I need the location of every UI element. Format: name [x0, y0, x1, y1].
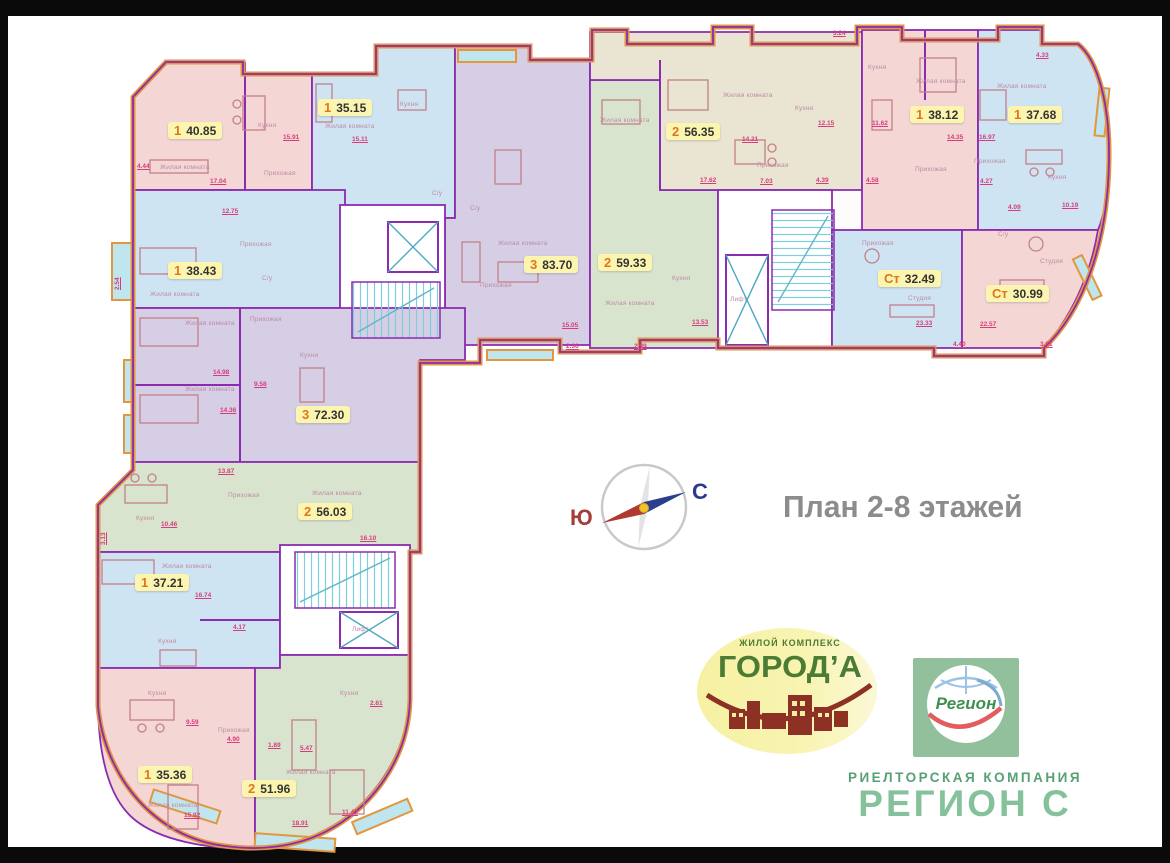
dimension-label: 14.36 [220, 407, 236, 414]
room-label-living: Жилая комната [160, 164, 210, 171]
room-label-hall: Прихожая [218, 727, 250, 734]
dimension-label: 4.39 [816, 177, 829, 184]
room-label-kitchen: Кухня [258, 122, 276, 129]
dimension-label: 15.11 [352, 136, 368, 143]
dimension-label: 2.54 [114, 277, 121, 290]
dimension-label: 16.74 [195, 592, 211, 599]
room-label-kitchen: Кухня [795, 105, 813, 112]
dimension-label: 5.47 [300, 745, 313, 752]
dimension-label: 14.35 [947, 134, 963, 141]
apartment-type: 1 [174, 264, 181, 277]
apartment-type: 1 [144, 768, 151, 781]
apartment-area: 38.43 [186, 265, 216, 277]
dimension-label: 17.04 [210, 178, 226, 185]
dimension-label: 10.19 [1062, 202, 1078, 209]
dimension-label: 13.53 [692, 319, 708, 326]
dimension-label: 15.05 [562, 322, 578, 329]
apartment-area: 51.96 [260, 783, 290, 795]
apartment-badge: 138.43 [168, 262, 222, 279]
room-label-living: Жилая комната [916, 78, 966, 85]
dimension-label: 10.46 [161, 521, 177, 528]
apartment-area: 59.33 [616, 257, 646, 269]
room-label-bath: С/у [998, 231, 1008, 238]
room-label-living: Жилая комната [148, 802, 198, 809]
room-label-hall: Прихожая [974, 158, 1006, 165]
room-label-living: Жилая комната [723, 92, 773, 99]
apartment-type: 1 [916, 108, 923, 121]
apartment-area: 35.15 [336, 102, 366, 114]
apartment-area: 35.36 [156, 769, 186, 781]
room-label-living: Жилая комната [498, 240, 548, 247]
room-label-living: Жилая комната [185, 320, 235, 327]
apartment-badge: 138.12 [910, 106, 964, 123]
apartment-type: 3 [530, 258, 537, 271]
compass-north-label: С [692, 479, 708, 505]
screenshot-frame: 140.85 135.15 383.70 256.35 259.33 138.1… [0, 0, 1170, 863]
apartment-zone-83-70 [445, 46, 590, 345]
dimension-label: 1.89 [268, 742, 281, 749]
room-label-hall: Прихожая [240, 241, 272, 248]
apartment-type: 2 [304, 505, 311, 518]
dimension-label: 18.91 [292, 820, 308, 827]
apartment-type: 1 [141, 576, 148, 589]
room-label-hall: Прихожая [480, 282, 512, 289]
dimension-label: 14.98 [213, 369, 229, 376]
room-label-bath: С/у [262, 275, 272, 282]
apartment-area: 40.85 [186, 125, 216, 137]
dimension-label: 4.33 [1036, 52, 1049, 59]
room-label-kitchen: Кухня [340, 690, 358, 697]
dimension-label: 12.15 [818, 120, 834, 127]
apartment-area: 30.99 [1013, 288, 1043, 300]
region-company-name: РЕГИОН С [830, 785, 1100, 824]
dimension-label: 4.44 [137, 163, 150, 170]
apartment-type: 1 [324, 101, 331, 114]
dimension-label: 16.10 [360, 535, 376, 542]
apartment-badge: 140.85 [168, 122, 222, 139]
compass-south-label: Ю [570, 505, 593, 531]
apartment-badge: 256.03 [298, 503, 352, 520]
room-label-kitchen: Кухня [136, 515, 154, 522]
room-label-bath: С/у [470, 205, 480, 212]
room-label-hall: Прихожая [862, 240, 894, 247]
dimension-label: 15.92 [184, 812, 200, 819]
room-label-kitchen: Кухня [158, 638, 176, 645]
dimension-label: 9.59 [186, 719, 199, 726]
room-label-hall: Прихожая [264, 170, 296, 177]
room-label-living: Жилая комната [605, 300, 655, 307]
dimension-label: 3.81 [1040, 341, 1053, 348]
room-label-living: Жилая комната [185, 386, 235, 393]
apartment-badge: 135.36 [138, 766, 192, 783]
apartment-area: 32.49 [905, 273, 935, 285]
room-label-living: Жилая комната [150, 291, 200, 298]
dimension-label: 9.58 [254, 381, 267, 388]
apartment-type: 2 [604, 256, 611, 269]
dimension-label: 2.36 [566, 343, 579, 350]
apartment-badge: 372.30 [296, 406, 350, 423]
dimension-label: 12.75 [222, 208, 238, 215]
dimension-label: 13.87 [218, 468, 234, 475]
dimension-label: 16.97 [979, 134, 995, 141]
apartment-type: 1 [174, 124, 181, 137]
room-label-living: Жилая комната [600, 117, 650, 124]
dimension-label: 14.21 [742, 136, 758, 143]
room-label-studio: Студия [1040, 258, 1063, 265]
apartment-area: 56.35 [684, 126, 714, 138]
room-label-living: Жилая комната [325, 123, 375, 130]
goroda-tagline: ЖИЛОЙ КОМПЛЕКС [695, 638, 885, 648]
room-label-elevator: Лифт [352, 626, 369, 633]
goroda-logo: ЖИЛОЙ КОМПЛЕКС ГОРОД’А [695, 625, 885, 760]
dimension-label: 2.99 [634, 343, 647, 350]
apartment-zone-35-36 [98, 668, 255, 849]
apartment-badge: 256.35 [666, 123, 720, 140]
room-label-elevator: Лифт [730, 296, 747, 303]
apartment-badge: 137.68 [1008, 106, 1062, 123]
room-label-living: Жилая комната [286, 769, 336, 776]
dimension-label: 2.61 [370, 700, 383, 707]
apartment-badge: 135.15 [318, 99, 372, 116]
dimension-label: 15.91 [283, 134, 299, 141]
dimension-label: 11.47 [342, 809, 358, 816]
dimension-label: 3.24 [833, 30, 846, 37]
room-label-kitchen: Кухня [868, 64, 886, 71]
apartment-area: 38.12 [928, 109, 958, 121]
room-label-kitchen: Кухня [300, 352, 318, 359]
apartment-type: 1 [1014, 108, 1021, 121]
dimension-label: 22.57 [980, 321, 996, 328]
apartment-type: Ст [992, 287, 1008, 300]
apartment-area: 37.21 [153, 577, 183, 589]
apartment-badge: 251.96 [242, 780, 296, 797]
apartment-badge: Ст30.99 [986, 285, 1049, 302]
apartment-type: Ст [884, 272, 900, 285]
dimension-label: 7.03 [760, 178, 773, 185]
dimension-label: 4.58 [866, 177, 879, 184]
dimension-label: 3.13 [100, 532, 107, 545]
apartment-area: 56.03 [316, 506, 346, 518]
apartment-type: 3 [302, 408, 309, 421]
region-company-block: РИЕЛТОРСКАЯ КОМПАНИЯ РЕГИОН С [830, 770, 1100, 824]
dimension-label: 17.62 [700, 177, 716, 184]
page-title: План 2-8 этажей [783, 489, 1023, 525]
apartment-badge: Ст32.49 [878, 270, 941, 287]
apartment-area: 72.30 [314, 409, 344, 421]
apartment-badge: 137.21 [135, 574, 189, 591]
dimension-label: 4.09 [1008, 204, 1021, 211]
room-label-studio: Студия [908, 295, 931, 302]
apartment-type: 2 [248, 782, 255, 795]
room-label-hall: Прихожая [915, 166, 947, 173]
dimension-label: 23.33 [916, 320, 932, 327]
room-label-kitchen: Кухня [400, 101, 418, 108]
apartment-area: 37.68 [1026, 109, 1056, 121]
room-label-bath: С/у [432, 190, 442, 197]
room-label-kitchen: Кухня [1048, 174, 1066, 181]
goroda-name: ГОРОД’А [691, 649, 889, 685]
apartment-badge: 383.70 [524, 256, 578, 273]
dimension-label: 4.40 [953, 341, 966, 348]
room-label-hall: Прихожая [757, 162, 789, 169]
apartment-badge: 259.33 [598, 254, 652, 271]
room-label-living: Жилая комната [312, 490, 362, 497]
apartment-zone-32-49 [832, 230, 962, 348]
room-label-kitchen: Кухня [672, 275, 690, 282]
room-label-hall: Прихожая [228, 492, 260, 499]
room-label-hall: Прихожая [250, 316, 282, 323]
apartment-area: 83.70 [542, 259, 572, 271]
compass-icon [598, 462, 690, 554]
room-label-living: Жилая комната [997, 83, 1047, 90]
region-logo: Регион [913, 658, 1019, 757]
dimension-label: 11.62 [872, 120, 888, 127]
dimension-label: 4.17 [233, 624, 246, 631]
dimension-label: 4.27 [980, 178, 993, 185]
region-mark-text: Регион [913, 694, 1019, 714]
dimension-label: 4.90 [227, 736, 240, 743]
apartment-type: 2 [672, 125, 679, 138]
room-label-living: Жилая комната [162, 563, 212, 570]
room-label-kitchen: Кухня [148, 690, 166, 697]
